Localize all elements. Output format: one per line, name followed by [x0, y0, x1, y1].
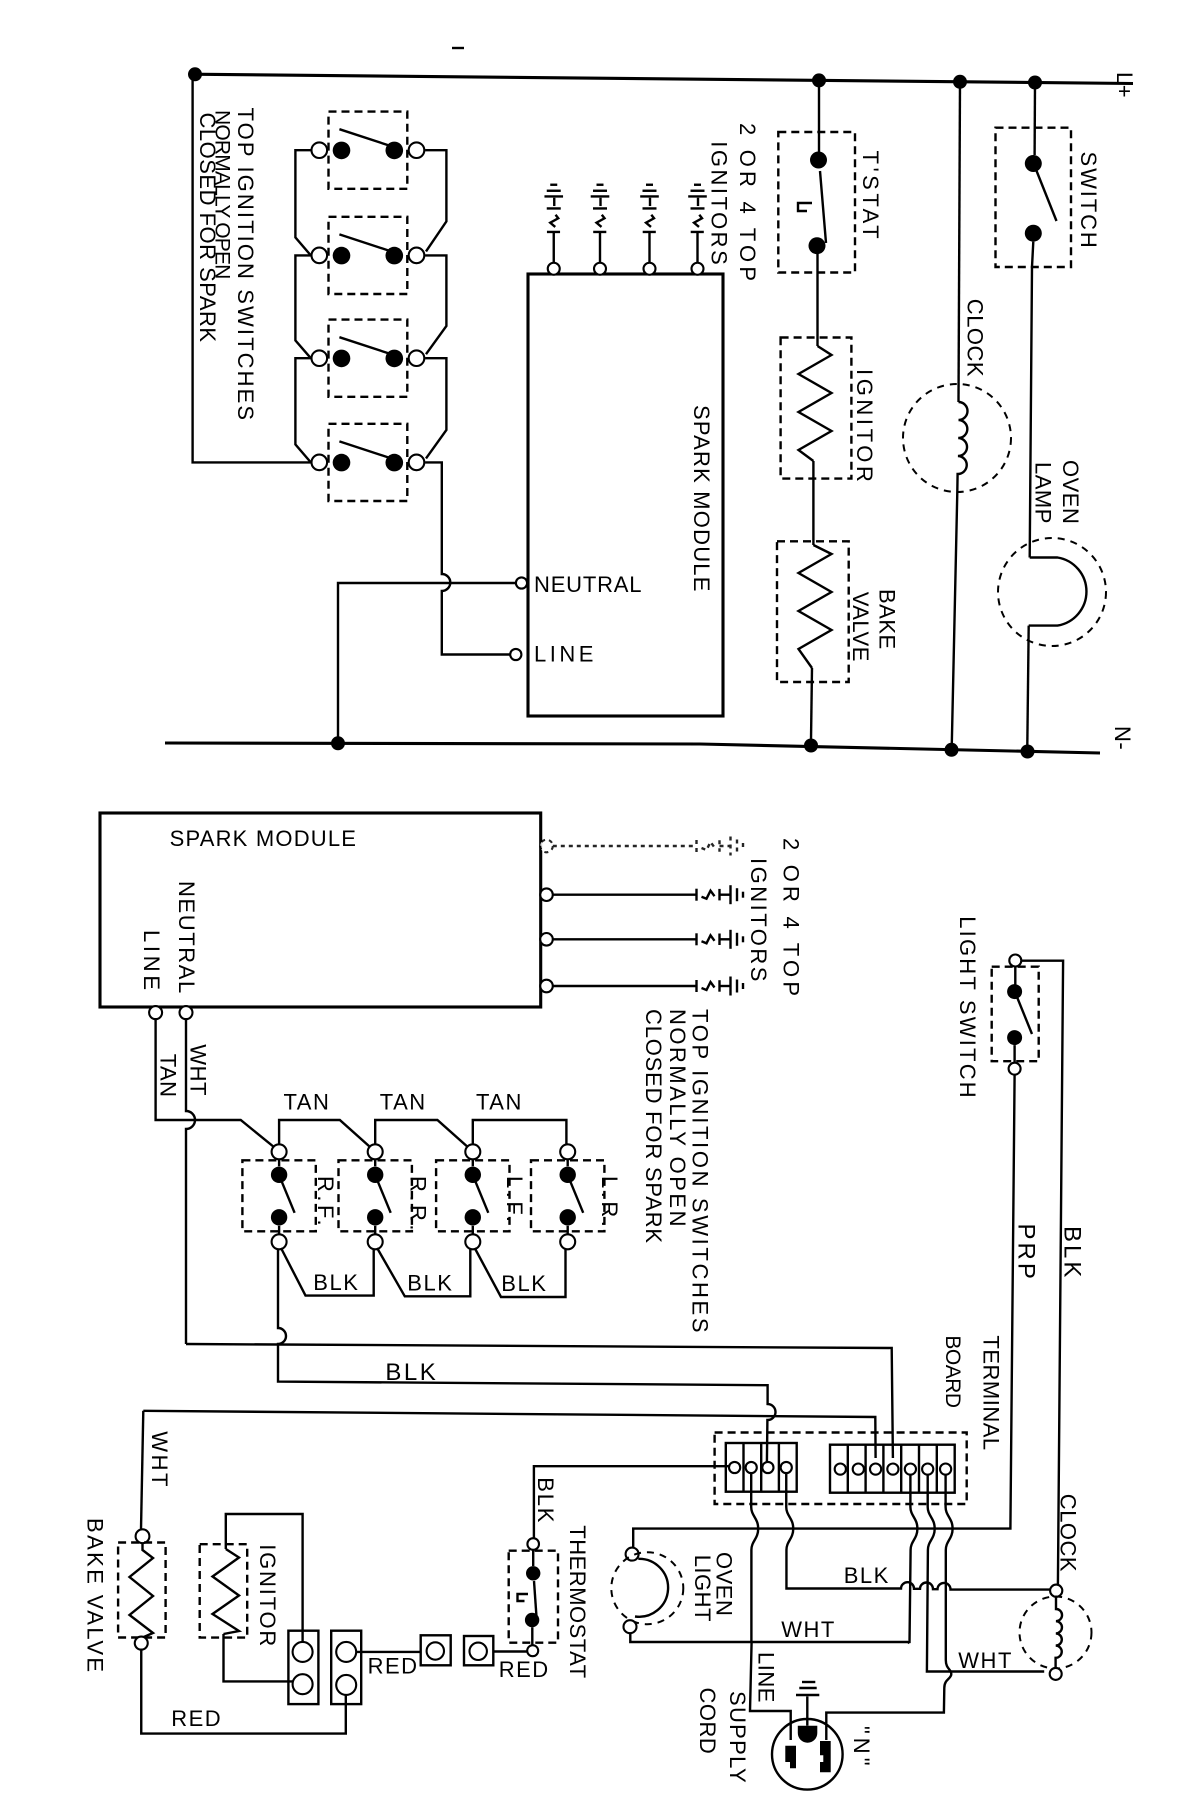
svg-text:RED: RED — [171, 1706, 222, 1731]
svg-text:NEUTRAL: NEUTRAL — [174, 881, 199, 995]
svg-text:LINE: LINE — [534, 642, 597, 667]
svg-text:LIGHT: LIGHT — [690, 1555, 715, 1622]
svg-text:"N": "N" — [849, 1726, 874, 1770]
svg-text:NEUTRAL: NEUTRAL — [534, 572, 642, 597]
svg-text:NORMALLY OPEN: NORMALLY OPEN — [665, 1009, 690, 1229]
svg-text:TERMINAL: TERMINAL — [978, 1335, 1003, 1450]
svg-text:BLK: BLK — [501, 1271, 547, 1296]
svg-text:L+: L+ — [1112, 72, 1137, 98]
svg-text:R.F.: R.F. — [313, 1176, 338, 1229]
svg-text:TOP IGNITION SWITCHES: TOP IGNITION SWITCHES — [688, 1009, 713, 1335]
svg-text:VALVE: VALVE — [848, 592, 873, 662]
svg-text:BLK: BLK — [407, 1271, 453, 1296]
svg-text:LINE: LINE — [139, 930, 164, 994]
svg-text:2 OR 4 TOP: 2 OR 4 TOP — [779, 838, 804, 1000]
svg-text:IGNITOR: IGNITOR — [255, 1544, 280, 1648]
svg-text:CLOSED FOR SPARK: CLOSED FOR SPARK — [195, 113, 220, 343]
svg-text:L.R.: L.R. — [597, 1176, 622, 1230]
svg-text:RED: RED — [499, 1657, 550, 1682]
svg-text:N-: N- — [1110, 726, 1135, 750]
svg-text:TAN: TAN — [380, 1090, 427, 1115]
svg-text:TAN: TAN — [155, 1054, 180, 1098]
svg-text:T'STAT: T'STAT — [858, 151, 883, 243]
svg-text:OVEN: OVEN — [1058, 460, 1083, 524]
svg-text:LAMP: LAMP — [1030, 462, 1055, 524]
svg-text:L.F.: L.F. — [502, 1176, 527, 1225]
svg-text:PRP: PRP — [1012, 1224, 1039, 1282]
svg-text:LIGHT SWITCH: LIGHT SWITCH — [955, 916, 980, 1100]
svg-text:TAN: TAN — [476, 1090, 523, 1115]
svg-text:BLK: BLK — [313, 1270, 359, 1295]
svg-text:RED: RED — [368, 1654, 419, 1679]
svg-text:SUPPLY: SUPPLY — [725, 1691, 750, 1784]
svg-text:WHT: WHT — [186, 1044, 211, 1096]
svg-text:SWITCH: SWITCH — [1076, 152, 1101, 250]
svg-text:BOARD: BOARD — [941, 1335, 964, 1408]
svg-text:2 OR 4 TOP: 2 OR 4 TOP — [735, 123, 760, 285]
svg-text:IGNITOR: IGNITOR — [852, 369, 877, 485]
svg-text:TAN: TAN — [284, 1090, 331, 1115]
svg-text:BAKE VALVE: BAKE VALVE — [83, 1518, 108, 1674]
svg-text:WHT: WHT — [958, 1648, 1013, 1673]
svg-text:WHT: WHT — [147, 1431, 172, 1489]
svg-text:IGNITORS: IGNITORS — [746, 858, 771, 984]
svg-text:CORD: CORD — [695, 1688, 720, 1755]
svg-text:THERMOSTAT: THERMOSTAT — [565, 1525, 590, 1678]
svg-text:R.R.: R.R. — [406, 1176, 431, 1234]
svg-text:BAKE: BAKE — [875, 589, 900, 650]
svg-text:TOP IGNITION SWITCHES: TOP IGNITION SWITCHES — [233, 108, 258, 423]
svg-text:CLOCK: CLOCK — [1055, 1494, 1080, 1572]
svg-text:BLK: BLK — [1058, 1226, 1085, 1280]
svg-text:IGNITORS: IGNITORS — [706, 141, 731, 267]
svg-text:LINE: LINE — [754, 1652, 779, 1703]
svg-text:BLK: BLK — [533, 1477, 558, 1524]
svg-text:CLOCK: CLOCK — [963, 299, 988, 377]
svg-text:SPARK MODULE: SPARK MODULE — [170, 826, 358, 851]
svg-text:CLOSED FOR SPARK: CLOSED FOR SPARK — [641, 1009, 666, 1244]
svg-text:SPARK MODULE: SPARK MODULE — [689, 405, 714, 593]
svg-text:BLK: BLK — [844, 1563, 890, 1588]
svg-text:BLK: BLK — [385, 1359, 438, 1386]
svg-text:WHT: WHT — [781, 1617, 836, 1642]
